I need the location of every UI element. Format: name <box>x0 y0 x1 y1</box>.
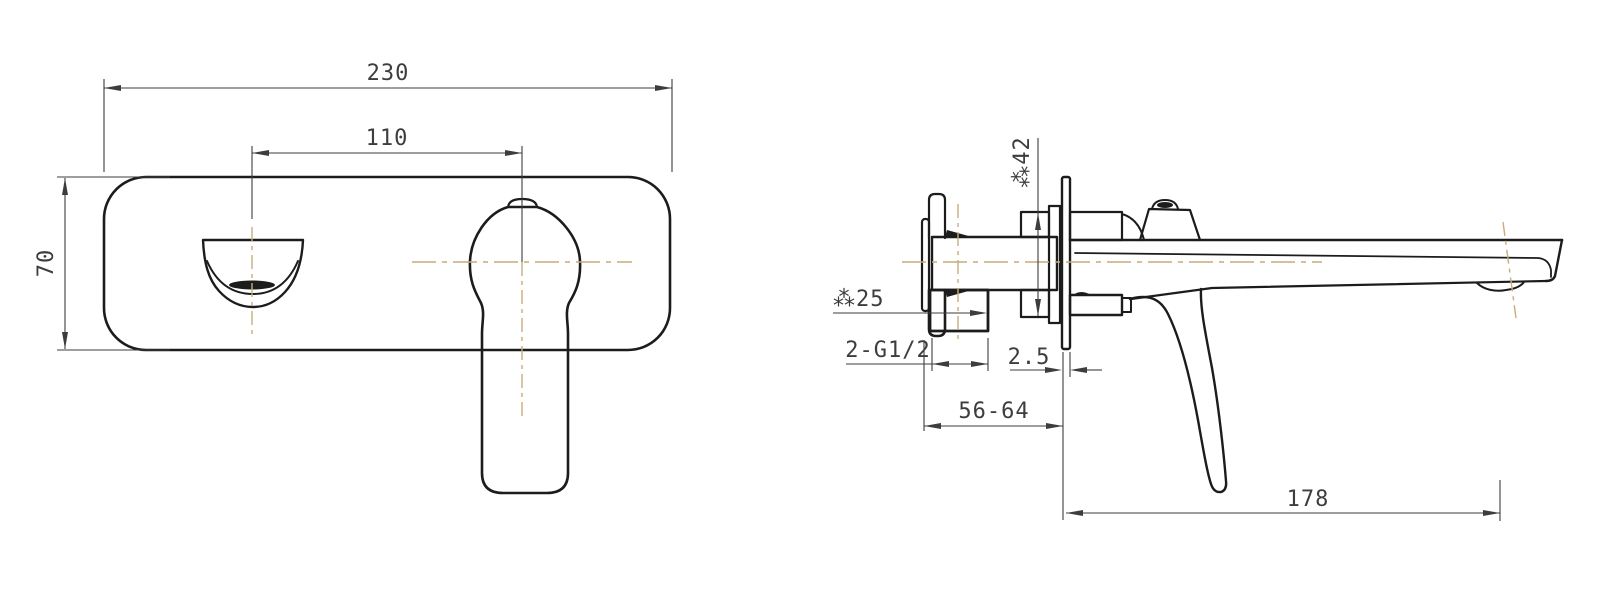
front-spout-outline <box>203 240 303 307</box>
dim-front-width-label: 230 <box>367 61 410 86</box>
dim-front-width: 230 <box>104 61 672 172</box>
arrowhead <box>1070 367 1087 373</box>
arrowhead <box>970 310 987 316</box>
dim-front-height-label: 70 <box>34 249 59 278</box>
arrowhead <box>1035 213 1041 230</box>
arrowhead <box>1046 423 1063 429</box>
side-trim-lug-bottom <box>1021 290 1049 317</box>
dim-front-spacing: 110 <box>252 126 522 262</box>
dim-side-thread-label: 2-G1/2 <box>845 338 930 363</box>
side-spout-base-top <box>1070 212 1122 240</box>
side-wall-plate <box>1062 177 1070 349</box>
arrowhead <box>1035 299 1041 316</box>
side-view: ⁂42 ⁂25 2-G1/2 2.5 <box>833 136 1562 521</box>
arrowhead <box>924 423 941 429</box>
drawing-page: 230 110 70 <box>0 0 1600 603</box>
side-spout-tip-edge <box>1546 240 1562 281</box>
side-spout-under-edge <box>1131 281 1546 299</box>
dim-side-spout-reach-label: 178 <box>1287 487 1330 512</box>
arrowhead <box>932 361 949 367</box>
side-nut-top <box>929 194 945 238</box>
arrowhead <box>104 85 121 91</box>
arrowhead <box>971 361 988 367</box>
front-view: 230 110 70 <box>34 61 672 493</box>
side-aerator-centerline <box>1503 222 1516 318</box>
side-mounting-flange <box>1049 206 1060 323</box>
side-spout-base-bottom <box>1070 295 1122 315</box>
side-inlet-block <box>930 290 988 331</box>
arrowhead <box>62 332 68 349</box>
dim-side-rough-in-depth-label: 56-64 <box>958 399 1029 424</box>
arrowhead <box>655 85 672 91</box>
front-plate-outline <box>104 177 670 350</box>
side-hub-button <box>1157 202 1173 208</box>
side-lever-outline <box>1130 289 1226 492</box>
dim-side-spout-reach: 178 <box>1066 480 1500 521</box>
arrowhead <box>1066 510 1083 516</box>
side-screw-bump <box>1073 292 1091 295</box>
arrowhead <box>252 150 269 156</box>
side-trim-lug-top <box>1021 212 1049 237</box>
side-spout-inner-edge <box>1075 253 1551 277</box>
arrowhead <box>505 150 522 156</box>
dim-side-thread: 2-G1/2 <box>845 338 988 371</box>
side-handle-hub <box>1140 209 1200 240</box>
technical-drawing: 230 110 70 <box>0 0 1600 603</box>
dim-side-plate-thickness: 2.5 <box>1008 345 1102 520</box>
dim-front-spacing-label: 110 <box>366 126 409 151</box>
dim-side-inlet-diameter-label: ⁂25 <box>833 287 885 312</box>
dim-front-height: 70 <box>34 177 170 350</box>
dim-side-trim-diameter-label: ⁂42 <box>1010 136 1035 188</box>
arrowhead <box>62 178 68 195</box>
arrowhead <box>1483 510 1500 516</box>
dim-side-plate-thickness-label: 2.5 <box>1008 345 1051 370</box>
